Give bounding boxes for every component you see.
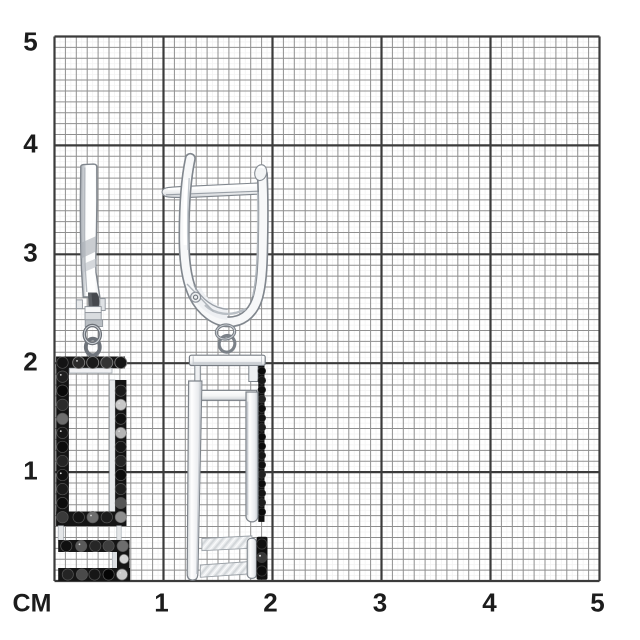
svg-text:3: 3 bbox=[23, 238, 37, 268]
svg-text:5: 5 bbox=[23, 27, 37, 57]
svg-text:4: 4 bbox=[482, 588, 497, 618]
svg-text:CM: CM bbox=[13, 590, 52, 618]
svg-text:5: 5 bbox=[590, 588, 604, 618]
svg-text:2: 2 bbox=[23, 347, 37, 377]
svg-text:4: 4 bbox=[23, 129, 38, 159]
svg-text:2: 2 bbox=[263, 588, 277, 618]
svg-text:1: 1 bbox=[23, 456, 37, 486]
svg-text:1: 1 bbox=[154, 588, 168, 618]
svg-text:3: 3 bbox=[373, 588, 387, 618]
